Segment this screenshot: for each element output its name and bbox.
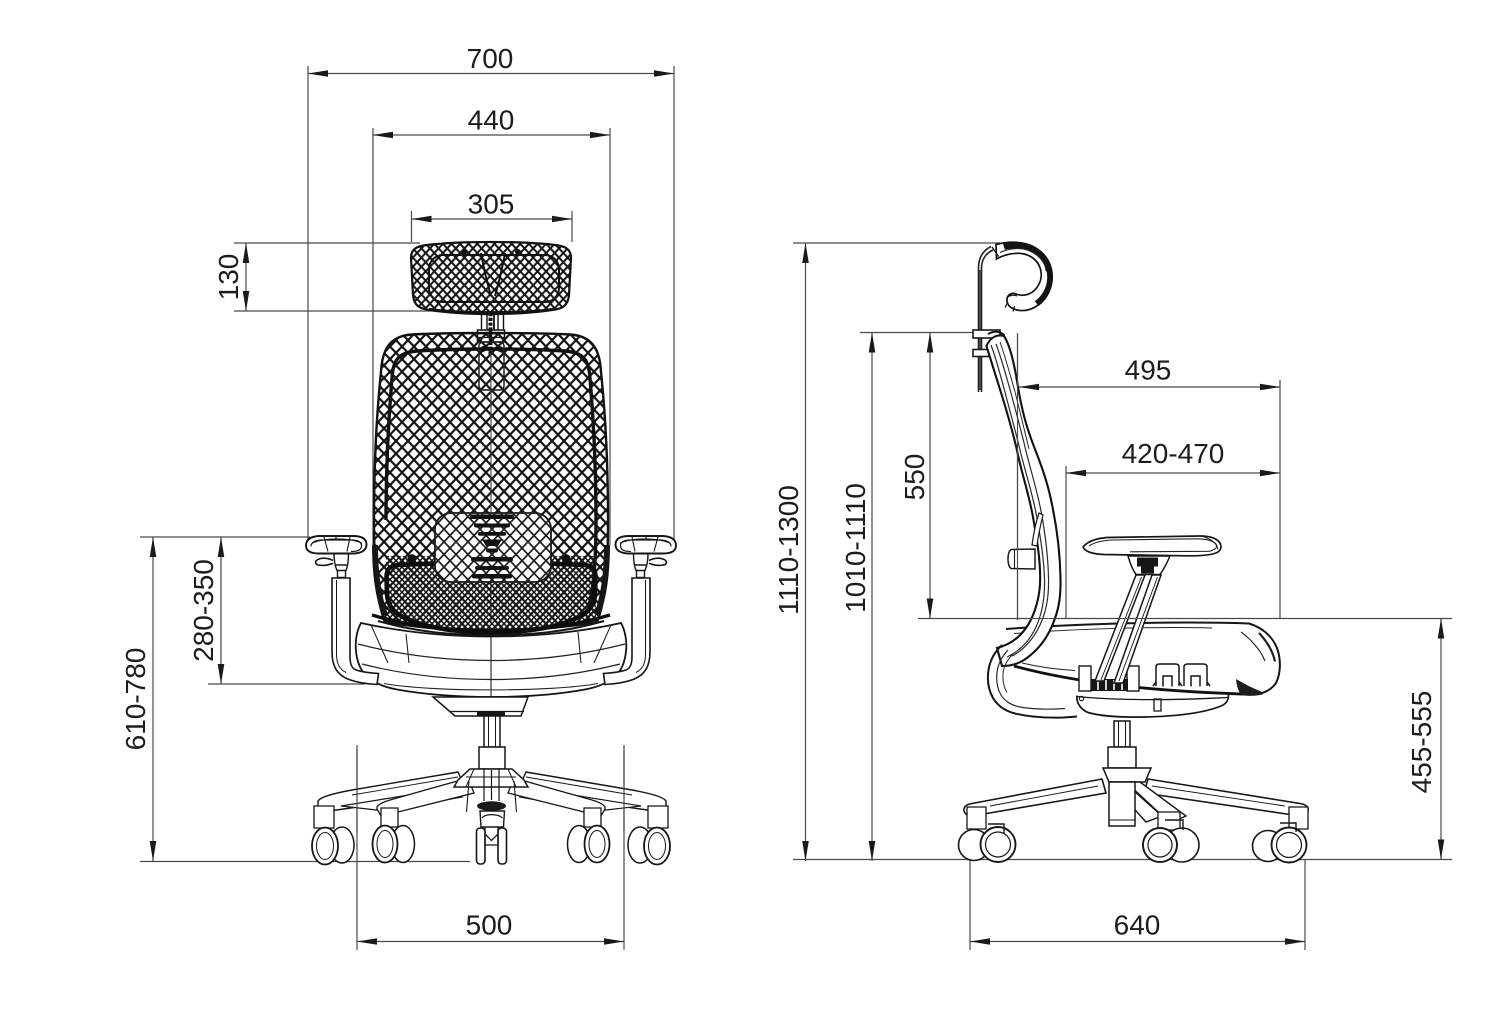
svg-text:550: 550 bbox=[899, 454, 930, 501]
svg-text:280-350: 280-350 bbox=[188, 559, 219, 662]
svg-text:305: 305 bbox=[468, 189, 515, 220]
svg-text:500: 500 bbox=[466, 910, 513, 941]
svg-text:130: 130 bbox=[213, 254, 244, 301]
svg-text:420-470: 420-470 bbox=[1122, 438, 1225, 469]
svg-text:455-555: 455-555 bbox=[1406, 691, 1437, 794]
svg-text:1010-1110: 1010-1110 bbox=[840, 483, 871, 613]
svg-text:610-780: 610-780 bbox=[120, 648, 151, 751]
svg-text:1110-1300: 1110-1300 bbox=[773, 485, 804, 615]
svg-text:440: 440 bbox=[468, 105, 515, 136]
svg-text:640: 640 bbox=[1114, 910, 1161, 941]
svg-text:700: 700 bbox=[467, 43, 514, 74]
svg-text:495: 495 bbox=[1125, 355, 1172, 386]
